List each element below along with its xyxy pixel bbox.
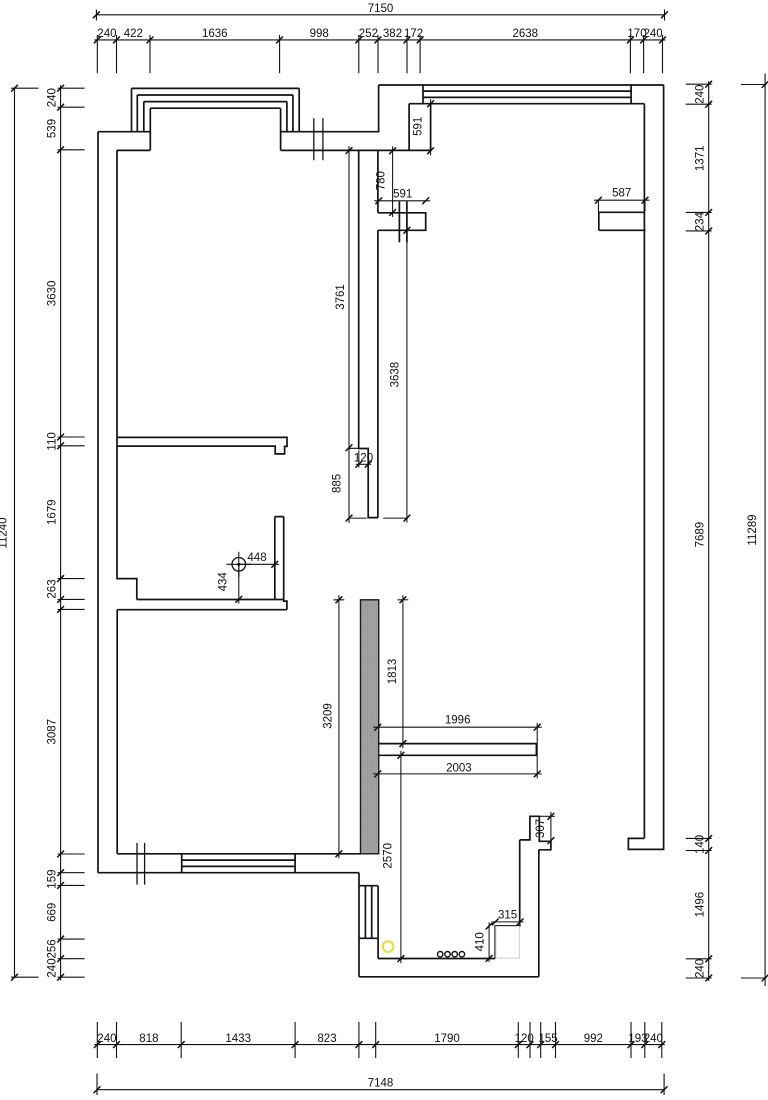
svg-text:172: 172	[404, 28, 423, 40]
svg-text:3087: 3087	[46, 719, 58, 745]
svg-text:1679: 1679	[46, 499, 58, 525]
svg-text:315: 315	[498, 910, 517, 922]
svg-text:240: 240	[97, 28, 116, 40]
svg-text:591: 591	[412, 117, 424, 136]
svg-text:256: 256	[46, 939, 58, 958]
svg-text:422: 422	[124, 28, 143, 40]
svg-text:11289: 11289	[747, 514, 759, 545]
svg-text:307: 307	[535, 819, 547, 838]
svg-text:587: 587	[612, 188, 631, 200]
svg-text:252: 252	[359, 28, 378, 40]
svg-text:240: 240	[46, 88, 58, 107]
svg-text:410: 410	[475, 932, 487, 951]
svg-text:263: 263	[46, 579, 58, 598]
svg-text:780: 780	[375, 171, 387, 190]
svg-text:1496: 1496	[695, 892, 707, 918]
svg-text:2570: 2570	[382, 843, 394, 869]
svg-text:7150: 7150	[368, 3, 394, 15]
svg-text:1813: 1813	[387, 659, 399, 685]
svg-text:992: 992	[584, 1033, 603, 1045]
svg-text:3638: 3638	[389, 362, 401, 388]
svg-text:2638: 2638	[513, 28, 539, 40]
svg-text:1371: 1371	[695, 146, 707, 172]
svg-text:1996: 1996	[445, 715, 471, 727]
svg-text:818: 818	[139, 1033, 158, 1045]
svg-text:155: 155	[539, 1033, 558, 1045]
svg-text:1790: 1790	[434, 1033, 460, 1045]
svg-text:11240: 11240	[0, 517, 10, 548]
svg-text:120: 120	[354, 453, 373, 465]
svg-text:448: 448	[247, 552, 266, 564]
svg-text:1636: 1636	[202, 28, 228, 40]
svg-text:669: 669	[46, 903, 58, 922]
svg-text:3209: 3209	[322, 703, 334, 729]
svg-text:998: 998	[310, 28, 329, 40]
svg-text:240: 240	[46, 958, 58, 977]
svg-text:434: 434	[217, 572, 229, 592]
svg-text:234: 234	[695, 211, 707, 231]
svg-text:382: 382	[383, 28, 402, 40]
svg-text:140: 140	[695, 835, 707, 854]
svg-text:3630: 3630	[46, 281, 58, 307]
svg-text:240: 240	[644, 1033, 663, 1045]
svg-text:120: 120	[515, 1033, 534, 1045]
svg-text:7148: 7148	[368, 1078, 394, 1090]
svg-text:885: 885	[331, 474, 343, 493]
svg-text:159: 159	[46, 870, 58, 889]
svg-text:7689: 7689	[695, 522, 707, 548]
svg-text:3761: 3761	[335, 284, 347, 310]
svg-text:2003: 2003	[446, 762, 472, 774]
svg-text:591: 591	[393, 188, 412, 200]
svg-text:539: 539	[46, 119, 58, 138]
svg-text:240: 240	[695, 85, 707, 104]
svg-text:240: 240	[644, 28, 663, 40]
svg-text:110: 110	[46, 432, 58, 450]
svg-text:1433: 1433	[225, 1033, 251, 1045]
svg-text:240: 240	[97, 1033, 116, 1045]
svg-text:240: 240	[695, 959, 707, 978]
svg-text:823: 823	[317, 1033, 336, 1045]
